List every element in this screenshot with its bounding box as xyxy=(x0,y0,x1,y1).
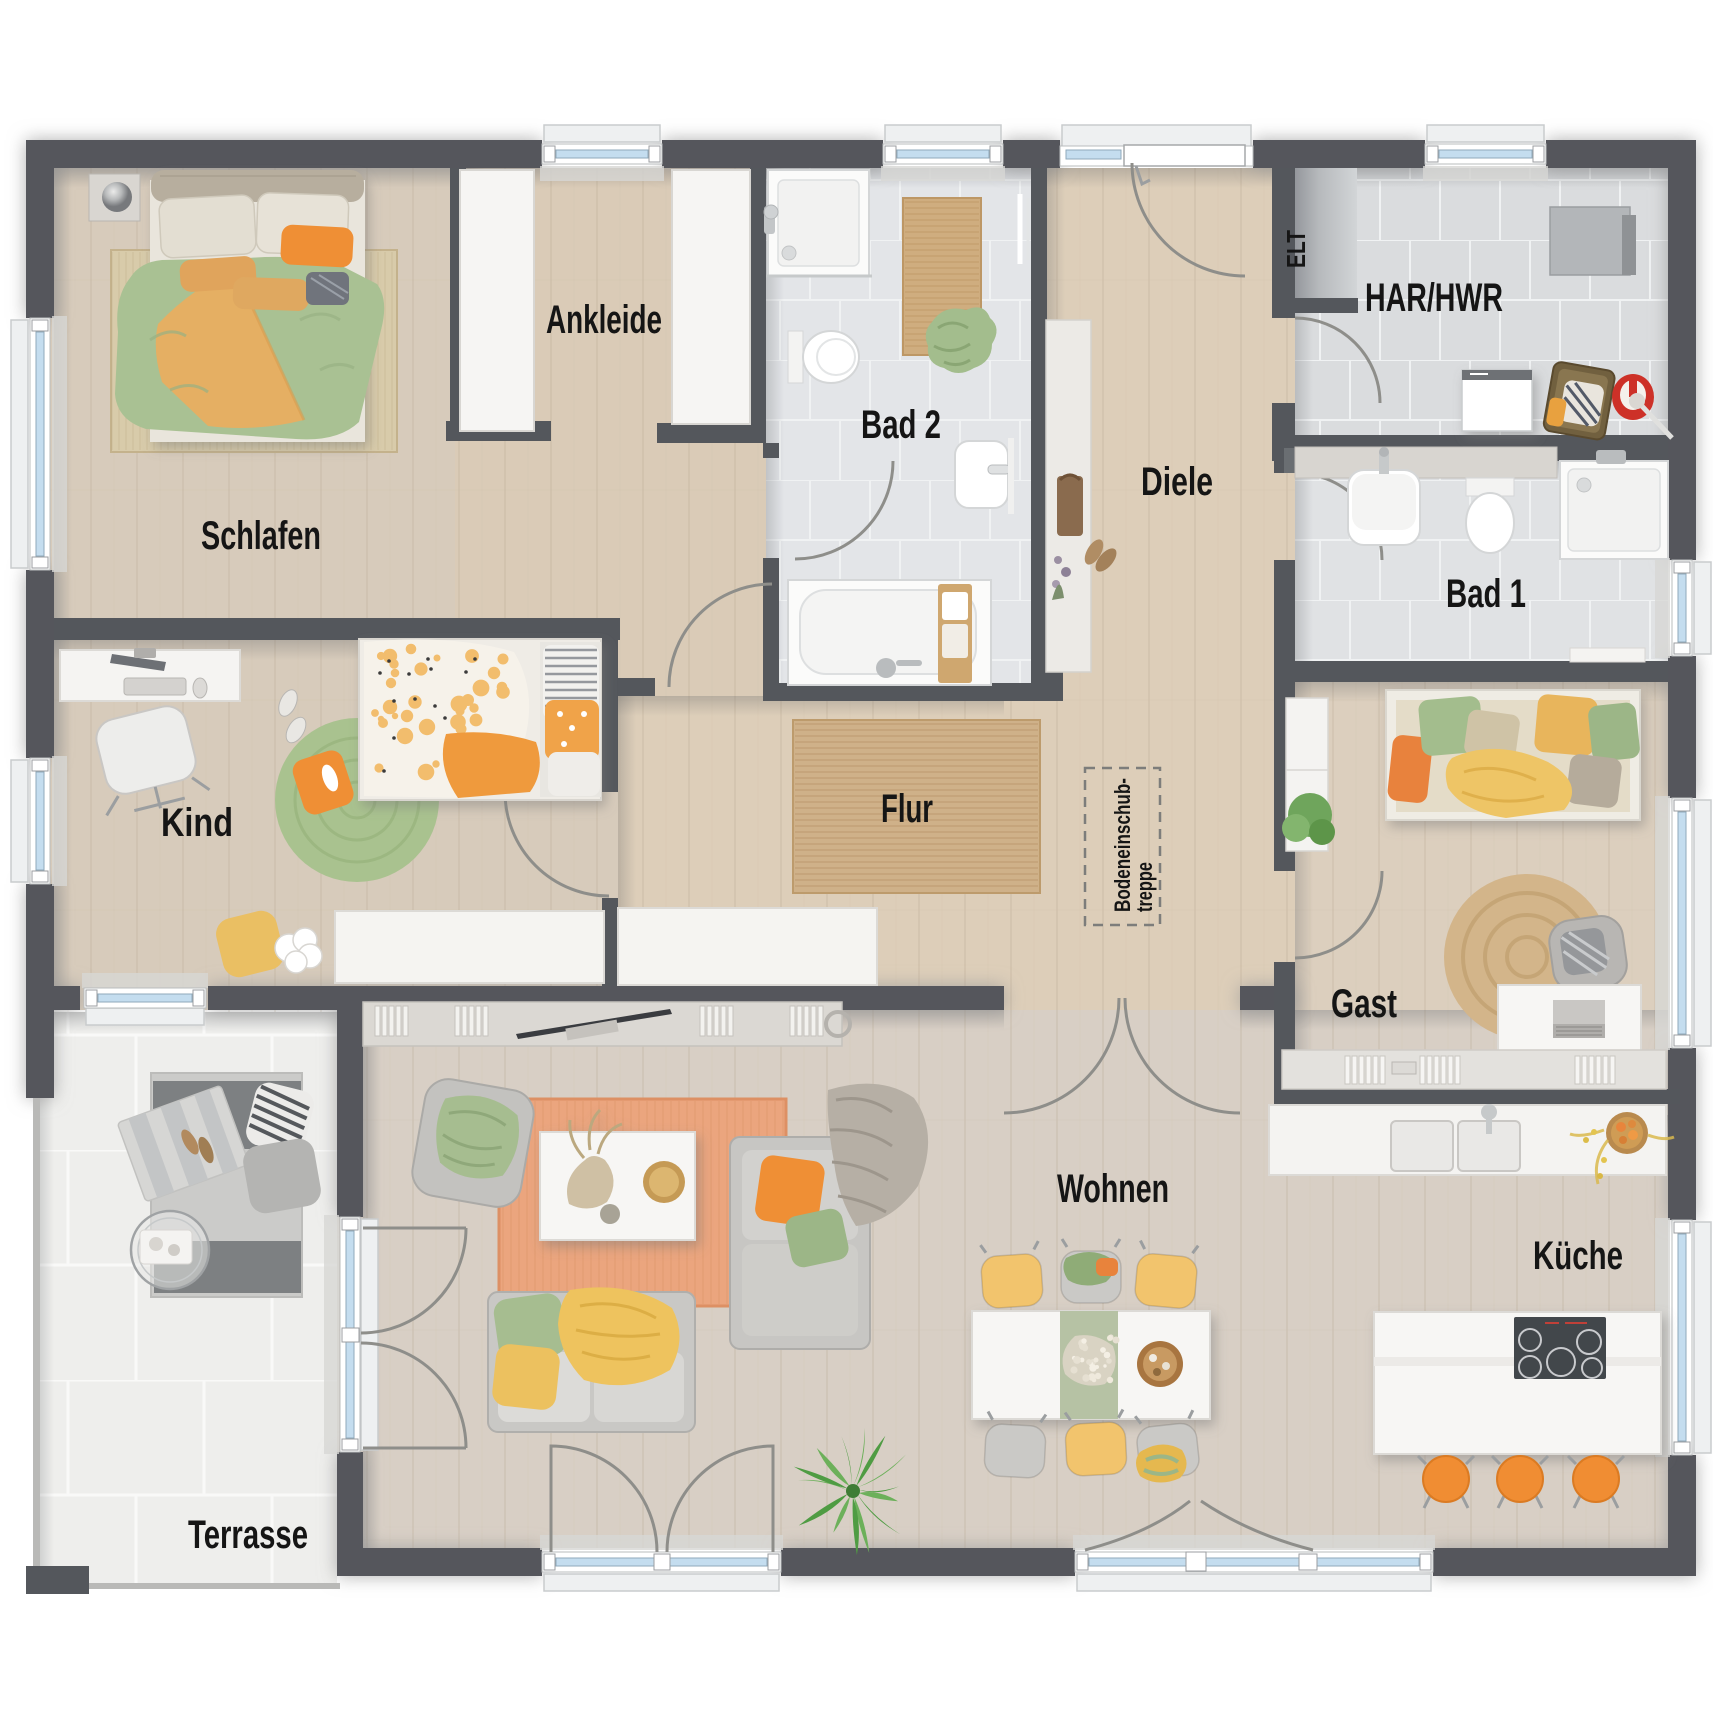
svg-text:Bad 2: Bad 2 xyxy=(861,403,941,447)
svg-text:HAR/HWR: HAR/HWR xyxy=(1365,276,1503,320)
svg-text:ELT: ELT xyxy=(1281,230,1311,268)
svg-text:treppe: treppe xyxy=(1132,862,1157,912)
svg-text:Küche: Küche xyxy=(1533,1234,1623,1278)
svg-text:Bad 1: Bad 1 xyxy=(1446,572,1526,616)
svg-text:Ankleide: Ankleide xyxy=(546,298,662,342)
svg-text:Diele: Diele xyxy=(1141,460,1213,504)
svg-text:Terrasse: Terrasse xyxy=(188,1513,308,1557)
svg-text:Schlafen: Schlafen xyxy=(201,514,321,558)
svg-text:Flur: Flur xyxy=(881,787,933,831)
svg-text:Kind: Kind xyxy=(161,801,233,845)
svg-text:Gast: Gast xyxy=(1331,982,1397,1026)
svg-text:Wohnen: Wohnen xyxy=(1057,1167,1169,1211)
